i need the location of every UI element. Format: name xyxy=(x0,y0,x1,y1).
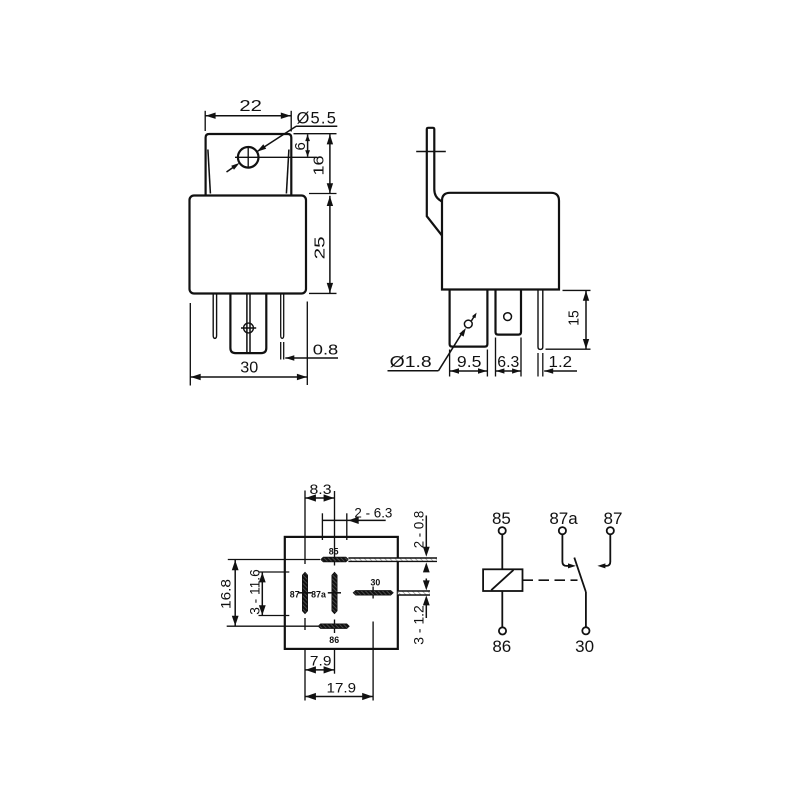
svg-text:85: 85 xyxy=(492,509,511,528)
svg-text:87: 87 xyxy=(290,589,300,599)
svg-text:86: 86 xyxy=(492,637,511,656)
svg-text:25: 25 xyxy=(312,236,329,259)
svg-text:8.3: 8.3 xyxy=(310,481,332,497)
svg-text:1.2: 1.2 xyxy=(549,354,573,371)
svg-text:30: 30 xyxy=(371,578,381,588)
svg-text:15: 15 xyxy=(565,310,582,326)
svg-text:3 - 1.2: 3 - 1.2 xyxy=(411,605,427,645)
svg-text:0.8: 0.8 xyxy=(313,342,339,359)
svg-text:30: 30 xyxy=(240,360,258,377)
svg-text:Ø1.8: Ø1.8 xyxy=(390,354,432,371)
svg-text:85: 85 xyxy=(329,546,339,556)
svg-text:87a: 87a xyxy=(549,509,578,528)
svg-text:2 - 6.3: 2 - 6.3 xyxy=(354,504,392,520)
svg-text:3 - 11.6: 3 - 11.6 xyxy=(246,569,262,615)
svg-text:16: 16 xyxy=(311,156,328,176)
svg-text:17.9: 17.9 xyxy=(327,680,357,696)
svg-text:7.9: 7.9 xyxy=(310,652,332,668)
svg-text:16.8: 16.8 xyxy=(218,579,234,609)
svg-text:2 - 0.8: 2 - 0.8 xyxy=(411,511,427,549)
svg-text:6: 6 xyxy=(292,142,309,150)
svg-text:87a: 87a xyxy=(311,589,326,599)
svg-text:Ø5.5: Ø5.5 xyxy=(297,110,338,128)
svg-text:86: 86 xyxy=(329,635,339,645)
svg-text:6.3: 6.3 xyxy=(497,354,519,371)
svg-text:9.5: 9.5 xyxy=(457,354,482,371)
svg-text:87: 87 xyxy=(604,509,623,528)
svg-text:22: 22 xyxy=(239,98,262,115)
svg-text:30: 30 xyxy=(575,637,594,656)
